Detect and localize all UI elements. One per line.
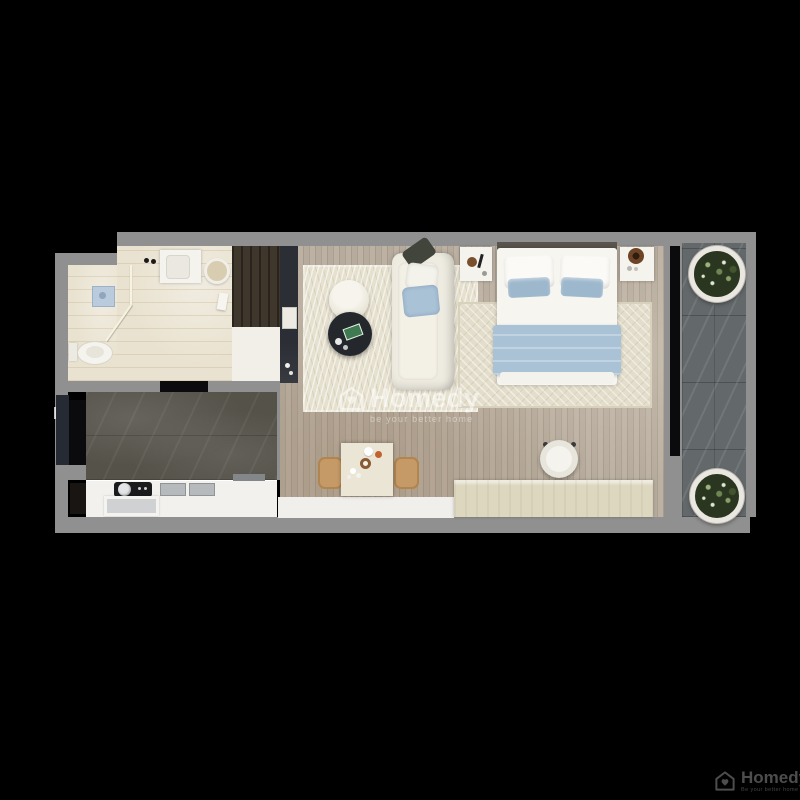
- low-cabinet-bench: [454, 480, 653, 517]
- bed-blanket: [493, 325, 621, 375]
- logo-tagline: Be your better home: [741, 787, 800, 793]
- homedy-house-icon: [338, 385, 365, 412]
- watermark-text-block: Homedy be your better home: [370, 385, 480, 424]
- nightstand-item: [482, 271, 487, 276]
- wall-left: [55, 253, 68, 533]
- bed-blanket-fold: [500, 372, 614, 384]
- lower-cabinet: [104, 496, 159, 516]
- shower-glass-vertical: [130, 265, 132, 305]
- flower: [350, 468, 356, 474]
- dining-chair-left: [318, 457, 343, 489]
- bathroom-door-opening: [160, 381, 208, 392]
- kitchen-floor: [86, 392, 277, 480]
- nightstand-mark: [627, 266, 632, 271]
- table-lamp: [628, 248, 644, 264]
- toilet-tank: [69, 343, 77, 361]
- homedy-watermark: Homedy be your better home: [338, 385, 480, 424]
- wall-right: [746, 232, 756, 517]
- sofa-pillow-blue: [402, 284, 441, 318]
- closet-nook-floor: [232, 327, 280, 381]
- wall-bottom: [55, 517, 750, 533]
- plate: [364, 447, 373, 456]
- counter-appliance: [233, 474, 265, 481]
- floorplan-canvas: Homedy be your better home Homedy Be you…: [0, 0, 800, 800]
- vanity-sink: [166, 255, 190, 279]
- dining-chair-right: [394, 457, 419, 489]
- kitchen-sink-left: [160, 483, 186, 496]
- door-hinge-marks: [54, 407, 56, 419]
- flower: [356, 473, 361, 478]
- wall-top: [117, 232, 752, 246]
- bed-cushion-blue-left: [508, 277, 551, 298]
- cooktop-knob: [138, 487, 141, 490]
- bed-cushion-blue-right: [561, 277, 604, 298]
- entry-door-recess: [69, 400, 86, 465]
- coffee-cup-nightstand: [467, 257, 477, 267]
- fruit: [375, 451, 382, 458]
- wardrobe: [232, 246, 280, 327]
- watermark-brand: Homedy: [370, 385, 480, 412]
- toilet-seat: [86, 346, 104, 358]
- floor-lamp-dot: [289, 371, 293, 375]
- faucet-dot: [144, 258, 149, 263]
- kitchen-sink-right: [189, 483, 215, 496]
- potted-plant-bottom: [690, 469, 744, 523]
- coffee-cup: [335, 338, 342, 345]
- balcony-window-glass: [670, 246, 680, 456]
- flower: [347, 475, 351, 479]
- shower-drain-core: [99, 292, 106, 299]
- logo-brand: Homedy: [741, 769, 800, 786]
- logo-text-block: Homedy Be your better home: [741, 769, 800, 793]
- wall-entry-stub: [55, 465, 86, 480]
- entry-door-panel: [56, 395, 69, 465]
- tv-console: [282, 307, 297, 329]
- homedy-logo: Homedy Be your better home: [714, 769, 800, 793]
- homedy-logo-house-icon: [714, 770, 736, 792]
- coffee-cup-small: [343, 345, 348, 350]
- hallway-floor-strip: [278, 497, 454, 518]
- counter-end-cabinet: [70, 483, 86, 514]
- desk-chair-seat: [546, 446, 572, 472]
- cooktop-knob: [144, 487, 147, 490]
- floor-lamp-dot: [285, 363, 290, 368]
- faucet-dot: [151, 259, 156, 264]
- watermark-tagline: be your better home: [370, 414, 480, 424]
- potted-plant-top: [689, 246, 745, 302]
- bowl: [360, 458, 371, 469]
- cooking-pot: [118, 483, 131, 496]
- nightstand-mark: [634, 267, 638, 271]
- towel-basket: [204, 258, 230, 284]
